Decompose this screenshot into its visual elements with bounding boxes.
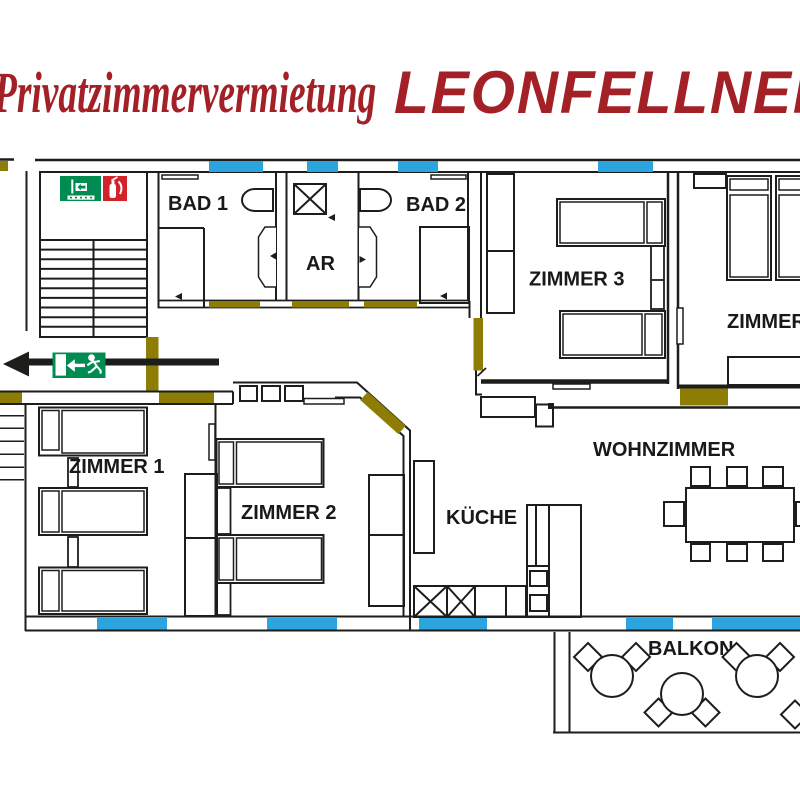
svg-text:ZIMMER 4: ZIMMER 4 [727,311,800,333]
svg-text:ZIMMER 1: ZIMMER 1 [69,456,165,478]
svg-text:BAD 2: BAD 2 [406,194,466,216]
svg-text:AR: AR [306,253,335,275]
svg-text:ZIMMER 3: ZIMMER 3 [529,269,625,291]
svg-text:ZIMMER 2: ZIMMER 2 [241,502,337,524]
svg-text:LEONFELLNER: LEONFELLNER [394,60,800,127]
svg-text:Privatzimmervermietung: Privatzimmervermietung [0,61,376,125]
svg-text:KÜCHE: KÜCHE [446,506,517,529]
svg-text:BALKON: BALKON [648,638,734,660]
svg-text:BAD 1: BAD 1 [168,193,228,215]
svg-text:WOHNZIMMER: WOHNZIMMER [593,439,736,461]
